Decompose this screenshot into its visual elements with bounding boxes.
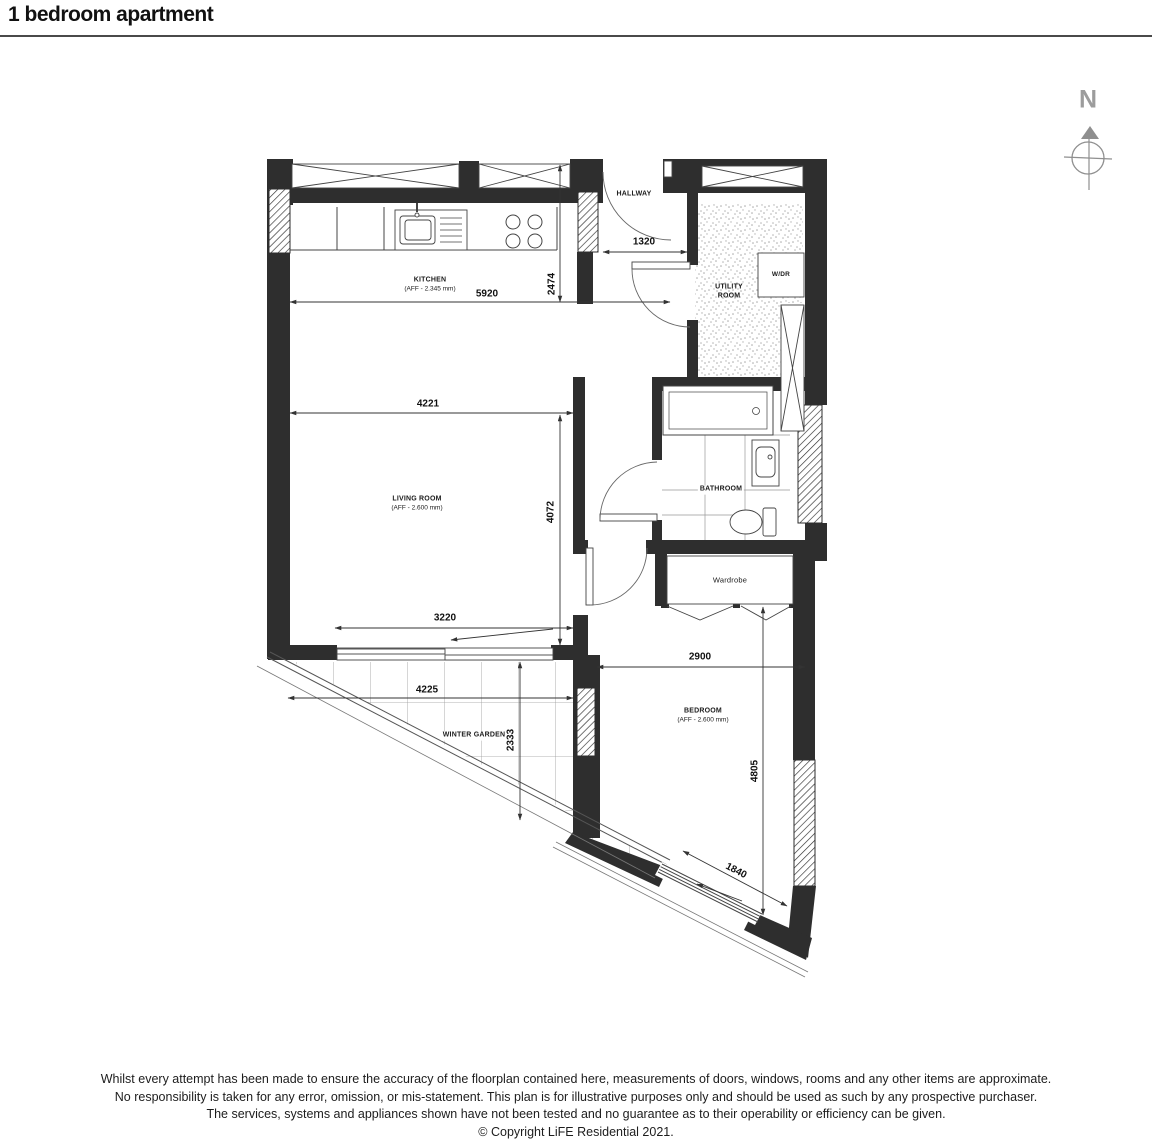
kitchen-label: KITCHEN (AFF - 2.345 mm) [404,277,455,294]
bathroom-sink [752,440,779,486]
living-room-aff: (AFF - 2.600 mm) [391,504,442,512]
dimension-living-depth: 4072 [546,501,557,523]
hallway-label: HALLWAY [617,191,652,200]
kitchen-aff: (AFF - 2.345 mm) [404,285,455,293]
wdr-label: W/DR [772,271,790,279]
dimension-hallway-width: 1320 [633,237,655,248]
living-room-name: LIVING ROOM [392,496,441,503]
dimension-kitchen-width: 5920 [476,289,498,300]
compass-north-label: N [1079,86,1097,115]
compass-icon [1064,126,1112,190]
dimension-winter-garden-width: 4225 [414,685,440,696]
dimension-bedroom-depth: 4805 [750,760,761,782]
disclaimer-line-3: The services, systems and appliances sho… [0,1106,1152,1124]
dimension-living-door-width: 3220 [434,613,456,624]
windows-group [292,164,803,188]
toilet [730,508,776,536]
disclaimer-line-2: No responsibility is taken for any error… [0,1089,1152,1107]
sliding-doors [337,648,553,660]
bedroom-name: BEDROOM [684,708,722,715]
riser-shaft [781,305,804,431]
kitchen-sink [395,203,467,250]
living-room-label: LIVING ROOM (AFF - 2.600 mm) [391,496,442,513]
dimension-kitchen-depth: 2474 [547,273,558,295]
disclaimer-line-1: Whilst every attempt has been made to en… [0,1071,1152,1089]
disclaimer-line-4: © Copyright LiFE Residential 2021. [0,1124,1152,1141]
kitchen-name: KITCHEN [414,277,447,284]
dimension-winter-garden-depth: 2333 [506,727,517,753]
bedroom-aff: (AFF - 2.600 mm) [677,716,728,724]
bathtub [663,386,773,435]
wardrobe-label: Wardrobe [713,575,747,584]
kitchen-hob [506,215,542,248]
page: 1 bedroom apartment [0,0,1152,1136]
bathroom-label: BATHROOM [698,486,744,495]
winter-garden-label: WINTER GARDEN [441,732,508,741]
wardrobe-unit [667,556,793,620]
utility-room-label: UTILITY ROOM [709,283,749,301]
floorplan-svg [0,0,1152,1136]
dimension-living-width: 4221 [417,399,439,410]
bedroom-label: BEDROOM (AFF - 2.600 mm) [677,708,728,725]
disclaimer: Whilst every attempt has been made to en… [0,1071,1152,1141]
dimension-bedroom-width: 2900 [689,652,711,663]
